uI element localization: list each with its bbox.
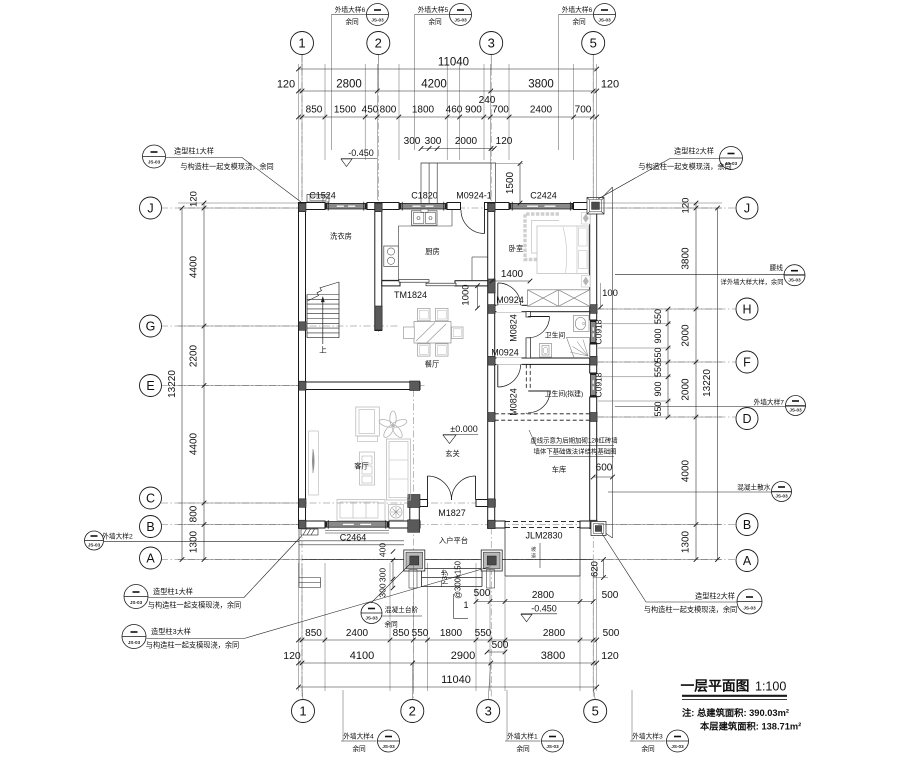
svg-text:2400: 2400: [530, 105, 553, 116]
svg-text:600: 600: [596, 463, 613, 474]
svg-text:外墙大样6: 外墙大样6: [335, 5, 366, 14]
svg-text:1:100: 1:100: [755, 680, 786, 694]
svg-text:卫生间: 卫生间: [545, 331, 566, 340]
svg-text:余同: 余同: [516, 744, 530, 753]
svg-text:JS-03: JS-03: [130, 600, 143, 605]
svg-text:外墙大样7: 外墙大样7: [754, 398, 785, 407]
svg-text:5: 5: [590, 36, 597, 51]
svg-text:混凝土散水: 混凝土散水: [737, 483, 771, 492]
svg-text:与构造柱一起支模现浇，余同: 与构造柱一起支模现浇，余同: [644, 605, 737, 614]
svg-text:1300: 1300: [681, 530, 692, 553]
svg-text:120: 120: [681, 198, 692, 214]
svg-text:11040: 11040: [441, 674, 471, 686]
svg-text:JS-03: JS-03: [365, 616, 378, 621]
svg-text:JLM2830: JLM2830: [525, 531, 562, 541]
svg-text:1500: 1500: [505, 171, 516, 194]
svg-text:2900: 2900: [451, 650, 475, 662]
svg-text:2000: 2000: [681, 378, 692, 401]
svg-text:120: 120: [601, 650, 619, 662]
svg-text:800: 800: [189, 505, 200, 522]
svg-text:550: 550: [653, 347, 663, 362]
svg-text:700: 700: [492, 105, 509, 116]
svg-text:JS-03: JS-03: [454, 17, 467, 22]
svg-text:550: 550: [475, 628, 492, 639]
svg-text:C: C: [146, 492, 155, 506]
svg-text:坡: 坡: [531, 546, 536, 553]
svg-text:120: 120: [277, 79, 295, 91]
svg-text:道: 道: [531, 553, 536, 560]
svg-text:E: E: [146, 379, 154, 393]
svg-text:M0924: M0924: [491, 348, 519, 358]
svg-text:JS-03: JS-03: [788, 278, 801, 283]
svg-text:2000: 2000: [681, 324, 692, 347]
svg-text:1000: 1000: [461, 284, 472, 305]
svg-text:500: 500: [474, 588, 491, 599]
svg-text:TM1824: TM1824: [394, 290, 427, 300]
svg-text:造型柱1大样: 造型柱1大样: [153, 587, 193, 596]
svg-text:4400: 4400: [189, 255, 200, 278]
svg-text:300: 300: [425, 136, 442, 147]
svg-text:300: 300: [378, 583, 388, 597]
svg-text:厨房: 厨房: [425, 247, 440, 256]
svg-text:850: 850: [393, 628, 410, 639]
svg-text:JS-03: JS-03: [789, 408, 802, 413]
svg-text:G: G: [146, 320, 156, 334]
svg-text:1: 1: [299, 704, 306, 719]
svg-text:M0824: M0824: [509, 388, 519, 416]
svg-text:500: 500: [603, 628, 620, 639]
svg-text:1: 1: [298, 36, 305, 51]
svg-text:造型柱1大样: 造型柱1大样: [174, 147, 214, 156]
svg-text:一层平面图: 一层平面图: [681, 679, 750, 694]
svg-text:余同: 余同: [384, 620, 398, 629]
svg-text:JS-03: JS-03: [88, 542, 101, 547]
svg-text:850: 850: [306, 105, 323, 116]
svg-text:H: H: [742, 303, 751, 317]
svg-text:洗衣房: 洗衣房: [330, 232, 352, 241]
svg-text:2200: 2200: [189, 344, 200, 367]
svg-text:-0.450: -0.450: [348, 148, 374, 158]
svg-text:-0.450: -0.450: [531, 604, 557, 614]
svg-text:外墙大样3: 外墙大样3: [632, 732, 663, 741]
svg-text:460: 460: [446, 105, 463, 116]
svg-text:车库: 车库: [552, 465, 567, 474]
svg-text:上: 上: [319, 346, 327, 355]
svg-text:1: 1: [463, 600, 468, 610]
svg-text:与构造柱一起支模现浇，余同: 与构造柱一起支模现浇，余同: [638, 162, 731, 171]
svg-text:13220: 13220: [702, 369, 713, 397]
svg-text:C2424: C2424: [530, 191, 557, 201]
svg-text:@300x150: @300x150: [454, 560, 463, 598]
svg-text:JS-03: JS-03: [743, 605, 756, 610]
svg-text:JS-03: JS-03: [128, 640, 141, 645]
svg-text:A: A: [743, 554, 752, 568]
svg-text:外墙大样5: 外墙大样5: [418, 5, 449, 14]
svg-text:550: 550: [653, 362, 663, 377]
svg-text:1300: 1300: [189, 530, 200, 553]
svg-text:1500: 1500: [334, 105, 357, 116]
svg-text:JS-03: JS-03: [148, 160, 161, 165]
svg-text:玄关: 玄关: [445, 449, 460, 458]
svg-text:余同: 余同: [572, 17, 586, 26]
svg-text:2800: 2800: [336, 79, 362, 91]
svg-text:120: 120: [601, 79, 619, 91]
svg-text:JS-03: JS-03: [382, 744, 395, 749]
svg-text:客厅: 客厅: [354, 462, 369, 471]
svg-text:300: 300: [404, 136, 421, 147]
svg-text:400: 400: [378, 543, 388, 557]
svg-text:550: 550: [412, 628, 429, 639]
svg-text:620: 620: [590, 561, 601, 577]
svg-text:4100: 4100: [350, 650, 374, 662]
svg-text:850: 850: [305, 628, 322, 639]
svg-text:4200: 4200: [421, 79, 447, 91]
svg-text:余同: 余同: [641, 744, 655, 753]
svg-text:13220: 13220: [167, 370, 178, 398]
svg-text:4000: 4000: [681, 459, 692, 482]
svg-text:外墙大样6: 外墙大样6: [562, 5, 593, 14]
svg-text:与构造柱一起支模现浇，余同: 与构造柱一起支模现浇，余同: [146, 641, 239, 650]
svg-text:B: B: [743, 518, 751, 532]
svg-text:造型柱2大样: 造型柱2大样: [695, 592, 735, 601]
svg-text:J: J: [147, 202, 153, 216]
svg-text:3800: 3800: [681, 247, 692, 270]
svg-text:11040: 11040: [438, 57, 469, 69]
svg-text:3800: 3800: [528, 79, 554, 91]
svg-text:1800: 1800: [440, 628, 463, 639]
svg-text:C0918: C0918: [594, 319, 604, 344]
svg-text:虚线示意为后期加砌120红砖墙: 虚线示意为后期加砌120红砖墙: [530, 436, 618, 445]
svg-text:2: 2: [375, 36, 382, 51]
svg-text:B: B: [146, 520, 154, 534]
svg-text:与构造柱一起支模现浇，余同: 与构造柱一起支模现浇，余同: [180, 162, 273, 171]
svg-text:2: 2: [409, 704, 416, 719]
svg-text:JS-03: JS-03: [546, 744, 559, 749]
svg-text:外墙大样4: 外墙大样4: [343, 732, 374, 741]
svg-text:下3步: 下3步: [441, 569, 449, 587]
svg-text:3: 3: [485, 704, 492, 719]
svg-text:500: 500: [492, 640, 509, 651]
svg-text:C1524: C1524: [309, 191, 336, 201]
svg-text:餐厅: 餐厅: [425, 360, 440, 369]
svg-text:800: 800: [380, 105, 397, 116]
svg-text:1400: 1400: [501, 269, 524, 280]
svg-text:注: 总建筑面积: 390.03m²: 注: 总建筑面积: 390.03m²: [682, 707, 789, 718]
svg-text:M0924-1: M0924-1: [456, 191, 492, 201]
svg-text:700: 700: [575, 105, 592, 116]
svg-text:450: 450: [362, 105, 379, 116]
svg-text:卧室: 卧室: [509, 244, 524, 253]
svg-text:墙体下基础做法详结构基础图: 墙体下基础做法详结构基础图: [533, 447, 616, 456]
svg-text:JS-03: JS-03: [371, 17, 384, 22]
svg-text:C2464: C2464: [340, 533, 367, 543]
svg-text:4400: 4400: [189, 432, 200, 455]
svg-text:M1827: M1827: [438, 508, 466, 518]
svg-text:卫生间(拟建): 卫生间(拟建): [545, 389, 584, 398]
svg-text:JS-03: JS-03: [671, 744, 684, 749]
svg-text:2800: 2800: [543, 628, 566, 639]
svg-text:3: 3: [488, 36, 495, 51]
svg-text:A: A: [146, 552, 155, 566]
svg-text:±0.000: ±0.000: [450, 424, 477, 434]
svg-text:1800: 1800: [412, 105, 435, 116]
svg-text:造型柱2大样: 造型柱2大样: [674, 147, 714, 156]
svg-text:C0918: C0918: [594, 372, 604, 397]
svg-text:300: 300: [378, 568, 388, 582]
svg-text:2800: 2800: [532, 590, 555, 601]
svg-text:详外墙大样大样，余同: 详外墙大样大样，余同: [721, 277, 784, 286]
svg-text:余同: 余同: [428, 17, 442, 26]
svg-text:M0824: M0824: [509, 314, 519, 342]
svg-text:C1820: C1820: [411, 191, 438, 201]
svg-text:外墙大样2: 外墙大样2: [102, 532, 133, 541]
svg-text:900: 900: [653, 381, 663, 396]
svg-text:JS-03: JS-03: [775, 494, 788, 499]
svg-text:JS-03: JS-03: [598, 17, 611, 22]
svg-text:入户平台: 入户平台: [439, 536, 468, 545]
svg-text:500: 500: [602, 590, 619, 601]
svg-text:J: J: [744, 202, 750, 216]
svg-text:100: 100: [602, 288, 618, 299]
svg-text:外墙大样1: 外墙大样1: [507, 732, 538, 741]
svg-text:余同: 余同: [345, 17, 359, 26]
svg-text:120: 120: [283, 650, 301, 662]
svg-text:腰线: 腰线: [770, 263, 784, 272]
svg-text:5: 5: [592, 704, 599, 719]
svg-text:造型柱3大样: 造型柱3大样: [151, 627, 191, 636]
svg-text:本层建筑面积: 138.71m²: 本层建筑面积: 138.71m²: [700, 721, 801, 732]
svg-text:900: 900: [653, 328, 663, 343]
svg-text:与构造柱一起支模现浇，余同: 与构造柱一起支模现浇，余同: [148, 601, 241, 610]
svg-text:900: 900: [465, 105, 482, 116]
svg-text:2000: 2000: [455, 136, 478, 147]
svg-text:M0924: M0924: [496, 295, 524, 305]
svg-text:3800: 3800: [541, 650, 565, 662]
svg-text:2400: 2400: [346, 628, 369, 639]
svg-text:550: 550: [653, 309, 663, 324]
svg-text:余同: 余同: [352, 744, 366, 753]
svg-text:F: F: [743, 356, 751, 370]
svg-text:混凝土台阶: 混凝土台阶: [385, 605, 419, 614]
svg-text:120: 120: [496, 136, 513, 147]
svg-text:120: 120: [189, 191, 200, 207]
svg-text:D: D: [742, 412, 751, 426]
svg-text:550: 550: [653, 401, 663, 416]
